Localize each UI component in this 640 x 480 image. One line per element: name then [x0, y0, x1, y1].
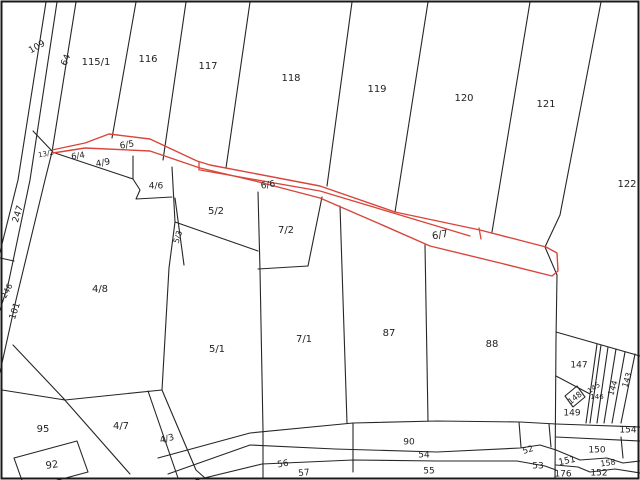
parcel-label-54: 54: [418, 451, 430, 461]
parcel-label-5-2: 5/2: [208, 206, 224, 217]
parcel-label-115-1: 115/1: [82, 57, 111, 68]
parcel-label-56: 56: [277, 459, 290, 471]
parcel-label-120: 120: [454, 93, 473, 104]
map-background: [0, 0, 640, 480]
parcel-label-87: 87: [383, 328, 396, 339]
parcel-label-116: 116: [138, 54, 157, 65]
parcel-label-118: 118: [281, 73, 300, 84]
parcel-label-4-8: 4/8: [92, 284, 108, 295]
parcel-label-5-1: 5/1: [209, 344, 225, 355]
parcel-label-55: 55: [423, 467, 434, 477]
parcel-label-122: 122: [617, 179, 636, 190]
parcel-label-95: 95: [37, 424, 50, 435]
parcel-label-147: 147: [570, 361, 587, 371]
parcel-label-146: 146: [590, 393, 604, 401]
parcel-label-4-6: 4/6: [149, 182, 164, 192]
cadastral-map-view[interactable]: 10964115/111611711811912012112213/26/46/…: [0, 0, 640, 480]
parcel-label-92: 92: [45, 459, 59, 472]
parcel-label-152: 152: [590, 469, 607, 479]
parcel-label-88: 88: [486, 339, 499, 350]
parcel-label-57: 57: [298, 468, 310, 479]
parcel-label-117: 117: [198, 61, 217, 72]
parcel-label-121: 121: [536, 99, 555, 110]
parcel-label-6-4: 6/4: [71, 151, 86, 163]
parcel-label-150: 150: [588, 446, 605, 456]
parcel-label-7-2: 7/2: [278, 225, 294, 236]
parcel-label-149: 149: [563, 409, 580, 419]
cadastral-map-canvas[interactable]: 10964115/111611711811912012112213/26/46/…: [0, 0, 640, 480]
parcel-label-90: 90: [403, 438, 415, 448]
parcel-label-119: 119: [367, 84, 386, 95]
parcel-label-7-1: 7/1: [296, 334, 312, 345]
parcel-label-53: 53: [532, 462, 543, 472]
parcel-label-4-7: 4/7: [113, 421, 129, 432]
parcel-label-154: 154: [619, 426, 636, 436]
